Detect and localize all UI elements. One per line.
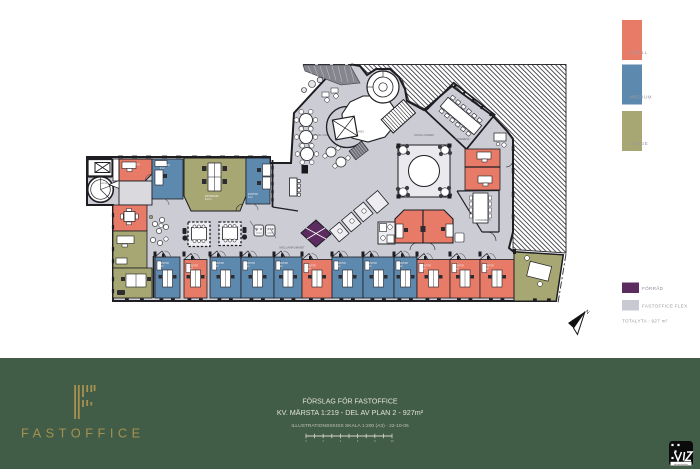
svg-text:7 m²: 7 m² [421, 268, 426, 271]
svg-text:KONTOR: KONTOR [159, 263, 169, 265]
svg-text:FÖRRÅD: FÖRRÅD [642, 285, 664, 291]
svg-text:7 m²: 7 m² [306, 268, 311, 271]
svg-text:FASTOFFICE: FASTOFFICE [21, 426, 145, 441]
svg-text:whitearkitekter: whitearkitekter [674, 463, 688, 466]
svg-text:7 m²: 7 m² [454, 268, 459, 271]
svg-text:KONTOR: KONTOR [484, 266, 494, 268]
svg-text:KONFERENS: KONFERENS [476, 219, 491, 222]
svg-text:TOTALYTA : 927 m²: TOTALYTA : 927 m² [622, 319, 668, 324]
svg-text:MEDIUM: MEDIUM [630, 95, 652, 101]
svg-text:KONTOR: KONTOR [188, 266, 198, 268]
svg-text:MELLANRUMMET: MELLANRUMMET [279, 246, 304, 250]
svg-text:KONTOR: KONTOR [214, 263, 224, 265]
svg-text:KONTOR: KONTOR [245, 263, 255, 265]
svg-text:MÖTESRUM: MÖTESRUM [205, 195, 218, 198]
svg-text:KONTOR: KONTOR [130, 165, 140, 167]
svg-text:KONFERENS: KONFERENS [455, 138, 470, 141]
svg-text:ILLUSTRATIONSSKISS SKALA 1:200: ILLUSTRATIONSSKISS SKALA 1:200 (A3) - 22… [291, 423, 409, 429]
svg-text:7 m²: 7 m² [245, 265, 250, 268]
svg-text:SOCIAL CORNER: SOCIAL CORNER [414, 134, 434, 137]
svg-text:FASTOFFICE FLEX: FASTOFFICE FLEX [642, 304, 688, 309]
svg-text:7 m²: 7 m² [367, 265, 372, 268]
svg-text:7 m²: 7 m² [484, 268, 489, 271]
svg-text:8-10 p: 8-10 p [205, 199, 212, 201]
svg-text:7 m²: 7 m² [398, 265, 403, 268]
svg-text:9 m²: 9 m² [160, 167, 165, 170]
svg-text:KONTOR: KONTOR [306, 266, 316, 268]
svg-text:KONTOR: KONTOR [421, 266, 431, 268]
svg-text:KONTOR: KONTOR [248, 194, 258, 196]
svg-text:KONTOR: KONTOR [398, 263, 408, 265]
svg-text:KONTOR: KONTOR [336, 263, 346, 265]
svg-text:KONTOR: KONTOR [160, 165, 170, 167]
svg-text:9 m²: 9 m² [248, 196, 253, 199]
svg-text:KV. MÄRSTA 1:219 - DEL AV PLAN: KV. MÄRSTA 1:219 - DEL AV PLAN 2 - 927m² [277, 408, 424, 417]
svg-text:KONTOR: KONTOR [454, 266, 464, 268]
svg-text:FÖRSLAG FÖR FASTOFFICE: FÖRSLAG FÖR FASTOFFICE [302, 398, 397, 406]
svg-text:LARGE: LARGE [630, 141, 648, 147]
svg-text:7 m²: 7 m² [159, 265, 164, 268]
svg-text:KONTOR: KONTOR [367, 263, 377, 265]
svg-text:7 m²: 7 m² [278, 265, 283, 268]
svg-text:SMALL: SMALL [630, 50, 648, 56]
svg-text:HISS: HISS [358, 131, 364, 134]
svg-text:KONTOR: KONTOR [278, 263, 288, 265]
svg-text:ENTRÉ: ENTRÉ [101, 182, 108, 185]
svg-text:7 m²: 7 m² [188, 268, 193, 271]
svg-text:7 m²: 7 m² [214, 265, 219, 268]
svg-text:7 m²: 7 m² [336, 265, 341, 268]
